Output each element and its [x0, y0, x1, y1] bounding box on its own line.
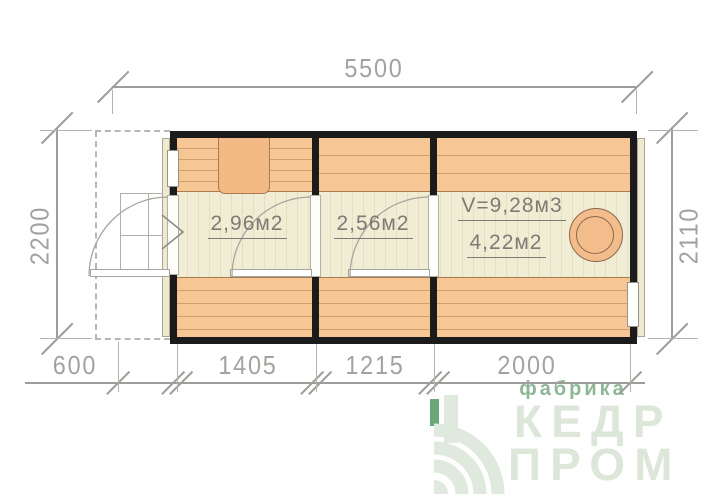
floor-plan-drawing: фабрика КЕДР ПРОМ 2,96м2 2,56м2 — [0, 0, 711, 502]
door-swing-arc-entrance — [89, 197, 168, 276]
dim-extension — [630, 344, 631, 392]
dim-line-right — [671, 128, 673, 339]
room3-volume-label: V=9,28м3 — [453, 194, 571, 221]
room2-area-value: 2,56м2 — [334, 212, 413, 239]
dim-left-value: 2200 — [25, 191, 56, 281]
dim-bottom-value-1405: 1405 — [194, 350, 302, 381]
dim-extension — [316, 344, 317, 392]
dim-right-value: 2110 — [674, 191, 705, 281]
dim-extension — [648, 338, 698, 339]
dim-extension — [118, 342, 119, 392]
dim-bottom-value-1215: 1215 — [321, 350, 429, 381]
dim-extension — [177, 344, 178, 392]
room1-area-label: 2,96м2 — [192, 212, 302, 239]
dim-extension — [40, 338, 92, 339]
dim-extension — [636, 90, 637, 114]
room3-area-value: 4,22м2 — [467, 231, 546, 258]
dim-line-top — [112, 86, 636, 88]
room3-area-label: 4,22м2 — [451, 231, 561, 258]
dim-bottom-value-600: 600 — [30, 350, 120, 381]
dim-extension — [40, 130, 92, 131]
room2-area-label: 2,56м2 — [318, 212, 428, 239]
dim-bottom-value-2000: 2000 — [473, 350, 581, 381]
room1-area-value: 2,96м2 — [208, 212, 287, 239]
room3-volume-value: V=9,28м3 — [458, 194, 565, 221]
dim-extension — [112, 90, 113, 114]
entry-direction-arrow — [162, 215, 183, 249]
dim-line-left — [56, 128, 58, 339]
dim-top-value: 5500 — [284, 53, 464, 84]
dim-extension — [648, 130, 698, 131]
dim-extension — [434, 344, 435, 392]
